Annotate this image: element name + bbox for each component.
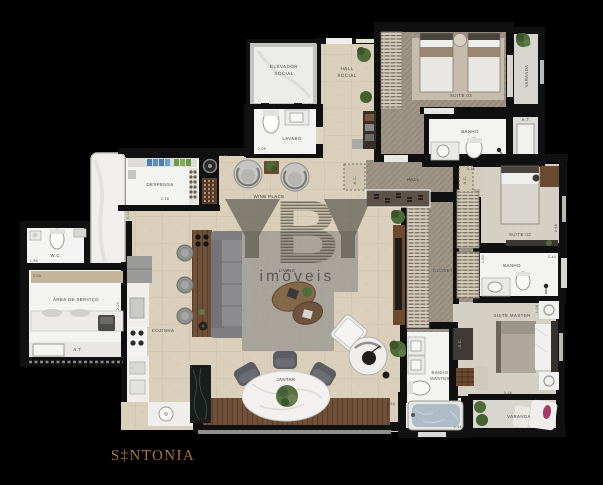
svg-text:ELEVADOR: ELEVADOR <box>270 64 298 69</box>
svg-text:COZINHA: COZINHA <box>152 328 175 333</box>
svg-text:6.10: 6.10 <box>126 211 130 219</box>
svg-text:2.40: 2.40 <box>548 255 556 259</box>
svg-text:3.28: 3.28 <box>504 391 512 395</box>
svg-text:SUITE 03: SUITE 03 <box>450 93 472 98</box>
svg-text:8.60: 8.60 <box>387 402 395 406</box>
svg-text:A.T.: A.T. <box>522 117 531 122</box>
svg-text:1.90: 1.90 <box>481 255 485 263</box>
svg-text:LIVING: LIVING <box>279 268 296 273</box>
svg-text:A.C.: A.C. <box>463 176 467 185</box>
svg-text:W.C.: W.C. <box>50 253 61 258</box>
svg-text:HALL: HALL <box>340 66 353 71</box>
svg-text:SOCIAL: SOCIAL <box>337 73 356 78</box>
svg-text:MASTER: MASTER <box>430 376 450 381</box>
svg-text:A.T.: A.T. <box>73 347 82 352</box>
svg-text:3.15: 3.15 <box>467 167 475 171</box>
svg-text:SUITE MASTER: SUITE MASTER <box>493 313 530 318</box>
svg-text:LAVABO: LAVABO <box>282 136 302 141</box>
svg-text:2.20: 2.20 <box>161 197 170 201</box>
svg-text:5.08: 5.08 <box>220 155 228 159</box>
svg-text:WINE PLACE: WINE PLACE <box>253 194 284 199</box>
svg-text:SUITE 02: SUITE 02 <box>509 232 531 237</box>
svg-text:A.C.: A.C. <box>353 176 357 185</box>
svg-text:2.68: 2.68 <box>554 224 558 232</box>
svg-text:2.05: 2.05 <box>258 147 267 151</box>
svg-text:imóveis: imóveis <box>260 268 335 285</box>
svg-text:1.96: 1.96 <box>454 425 462 429</box>
svg-text:ÁREA DE SERVIÇO: ÁREA DE SERVIÇO <box>53 297 99 302</box>
svg-text:JANTAR: JANTAR <box>276 377 295 382</box>
svg-text:S‡NTONIA: S‡NTONIA <box>111 448 195 464</box>
svg-text:HALL: HALL <box>407 177 420 182</box>
svg-text:1.08: 1.08 <box>535 305 539 313</box>
svg-text:VARANDA: VARANDA <box>507 414 531 419</box>
svg-text:CLOSET: CLOSET <box>433 268 453 273</box>
svg-text:BANHO: BANHO <box>503 263 521 268</box>
svg-text:A.C.: A.C. <box>432 110 441 114</box>
svg-text:1.80: 1.80 <box>30 259 38 263</box>
svg-text:BANHO: BANHO <box>461 129 479 134</box>
svg-text:VARANDA: VARANDA <box>524 65 529 88</box>
svg-text:DESPENSA: DESPENSA <box>146 182 173 187</box>
svg-text:BANHO: BANHO <box>432 370 449 375</box>
svg-text:2.00: 2.00 <box>116 302 120 310</box>
svg-text:A.C.: A.C. <box>458 339 462 348</box>
svg-text:3.00: 3.00 <box>33 274 41 278</box>
svg-text:SOCIAL: SOCIAL <box>274 71 293 76</box>
